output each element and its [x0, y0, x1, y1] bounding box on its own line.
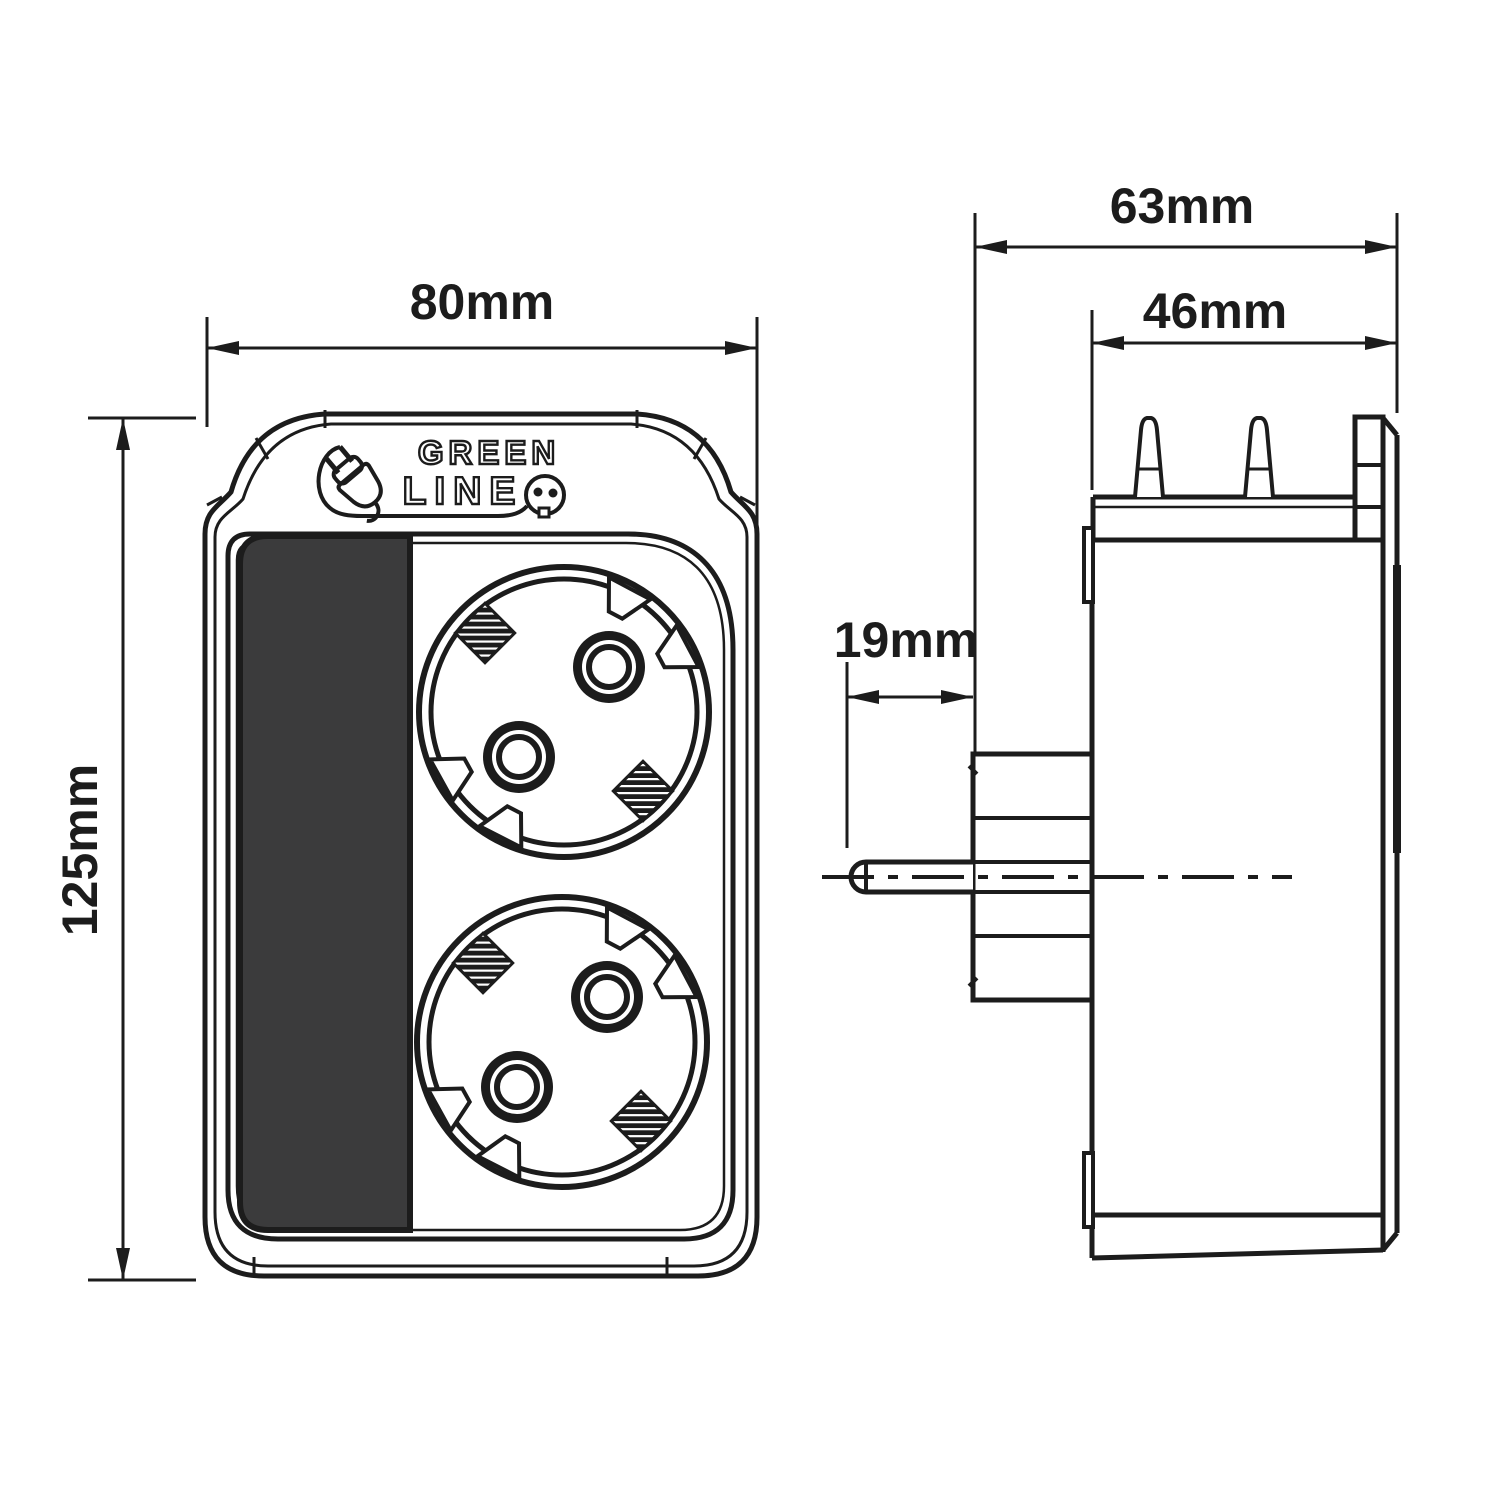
top-prong-right — [1245, 418, 1273, 497]
side-right-wall-band — [1393, 565, 1401, 853]
drawing-canvas — [0, 0, 1500, 1500]
dim-label-front-height: 125mm — [51, 764, 109, 936]
side-left-bump-bottom — [1084, 1153, 1093, 1227]
dim-label-front-width: 80mm — [410, 273, 555, 331]
front-view — [205, 410, 757, 1276]
socket-top — [419, 567, 709, 857]
pin-hole — [573, 631, 645, 703]
earth-clip — [611, 1091, 670, 1150]
side-view — [822, 417, 1401, 1258]
socket-outer-ring — [419, 567, 709, 857]
side-left-bump-top — [1084, 528, 1093, 602]
earth-clip — [613, 761, 672, 820]
socket-outer-ring — [417, 897, 707, 1187]
earth-clip — [453, 933, 512, 992]
dim-pin-length — [847, 662, 973, 848]
pin-hole — [481, 1051, 553, 1123]
logo-word-line: LINE — [403, 470, 524, 514]
dim-label-side-depth-body: 46mm — [1143, 282, 1288, 340]
socket-bottom — [417, 897, 707, 1187]
socket-face-icon — [526, 476, 564, 517]
pin-hole — [483, 721, 555, 793]
dim-label-side-depth-total: 63mm — [1110, 177, 1255, 235]
front-dark-panel — [240, 536, 410, 1230]
technical-drawing-sheet: 80mm 125mm 63mm 46mm 19mm GREEN LINE — [0, 0, 1500, 1500]
pin-hole — [571, 961, 643, 1033]
side-right-tab — [1355, 417, 1383, 540]
side-body-bottom — [1092, 1250, 1383, 1258]
dim-label-pin-length: 19mm — [834, 611, 979, 669]
logo-word-green: GREEN — [418, 434, 560, 472]
earth-clip — [455, 603, 514, 662]
top-prong-left — [1135, 418, 1163, 497]
